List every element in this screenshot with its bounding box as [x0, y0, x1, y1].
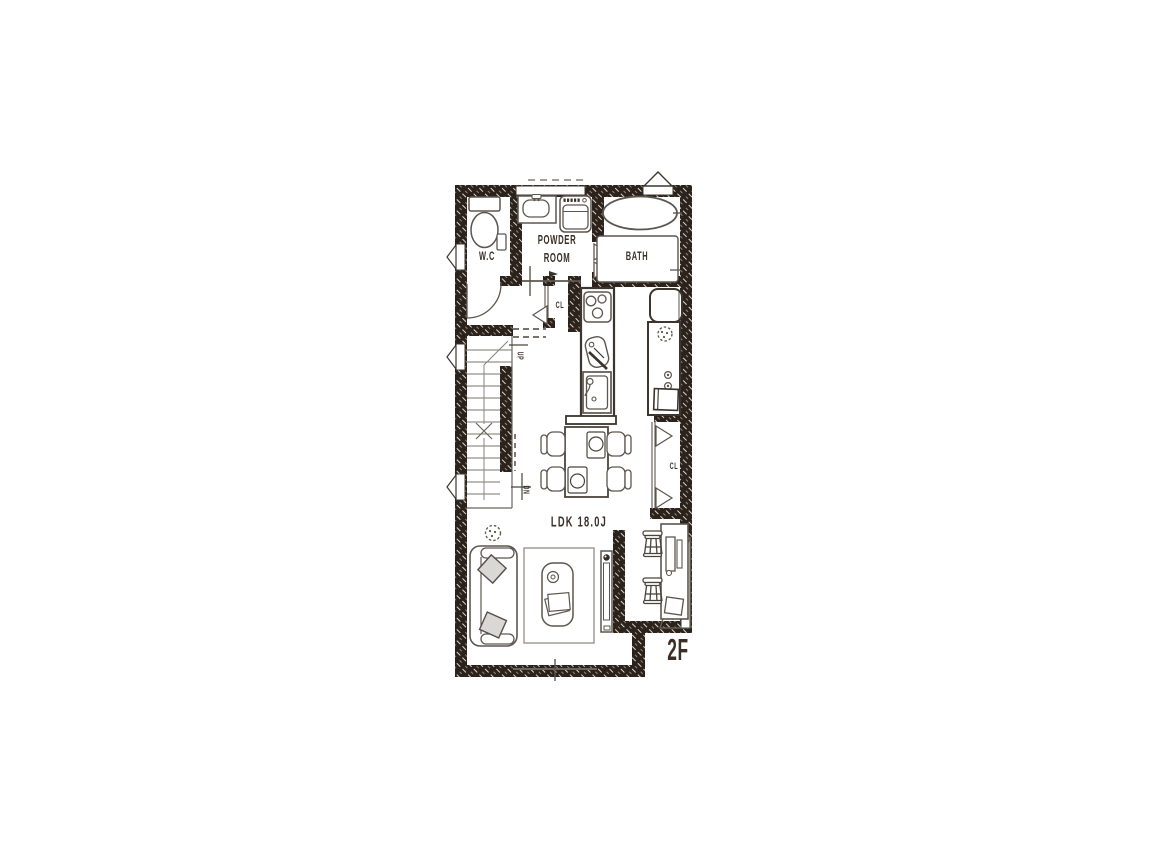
vanity-sink-icon: [518, 195, 556, 224]
wall-closet2-bottom: [650, 508, 692, 519]
wall-tv-partition: [613, 530, 625, 623]
tray-icon: [548, 593, 570, 612]
room-label-powder-line1: POWDER: [538, 233, 577, 247]
stair-break-mark: [476, 423, 492, 439]
floor-plan-drawing: [0, 0, 1150, 865]
room-label-closet-hall: CL: [556, 300, 565, 310]
island-base: [566, 416, 616, 424]
dining-chair-icon: [541, 432, 565, 456]
window-wc-left: [447, 244, 465, 270]
room-label-powder-line2: ROOM: [544, 251, 571, 265]
window-stairs-upper: [447, 344, 465, 370]
folding-door-closet: [533, 286, 548, 324]
area-label-ldk: LDK 18.0J: [551, 514, 607, 531]
room-label-closet-ldk: CL: [670, 461, 679, 471]
dining-chair-icon: [541, 467, 565, 491]
wall-bottom: [455, 665, 645, 677]
floor-label: 2F: [667, 632, 688, 668]
dining-chair-icon: [607, 432, 631, 456]
kitchen-sink-icon: [583, 372, 611, 413]
window-stairs-lower: [447, 474, 465, 500]
desk-box: [664, 597, 683, 615]
study-desk-icon: [661, 524, 688, 619]
dining-table-icon: [565, 427, 608, 497]
refrigerator-icon: [650, 289, 682, 322]
floor-plan: W.C POWDER ROOM BATH CL CL UP DN LDK 18.…: [0, 0, 1150, 865]
stairs-up-label: UP: [516, 352, 525, 361]
wall-step-connector: [632, 633, 645, 677]
stairs-down-label: DN: [522, 486, 531, 495]
wall-closet-right: [568, 276, 581, 332]
dining-chair-icon: [607, 467, 631, 491]
stairs-icon: [467, 336, 531, 508]
wall-wc-bottom-right: [500, 276, 522, 286]
toilet-icon: [469, 197, 506, 250]
tv-icon: [601, 551, 612, 632]
low-table-icon: [542, 563, 573, 626]
laptop-icon: [666, 537, 675, 571]
wall-stairs-top: [455, 325, 513, 336]
wall-stairs-center: [500, 366, 512, 472]
wall-wc-bottom-left: [455, 276, 467, 286]
sliding-door-bottom: [513, 659, 597, 681]
window-top-bath: [643, 186, 673, 195]
sofa-armrest: [481, 548, 514, 558]
room-label-wc: W.C: [479, 249, 495, 263]
gable-vent-icon: [644, 172, 672, 186]
bathtub-icon: [597, 197, 682, 283]
washing-machine-icon: [560, 196, 591, 232]
room-label-bath: BATH: [626, 249, 649, 263]
sofa-icon: [470, 546, 517, 646]
stool-icon: [643, 578, 662, 604]
stool-icon: [643, 531, 662, 557]
swing-door-wc: [467, 284, 501, 318]
counter-appliance-icon: [654, 389, 679, 411]
window-top-powder: [516, 186, 585, 195]
plant-icon: [486, 526, 501, 541]
